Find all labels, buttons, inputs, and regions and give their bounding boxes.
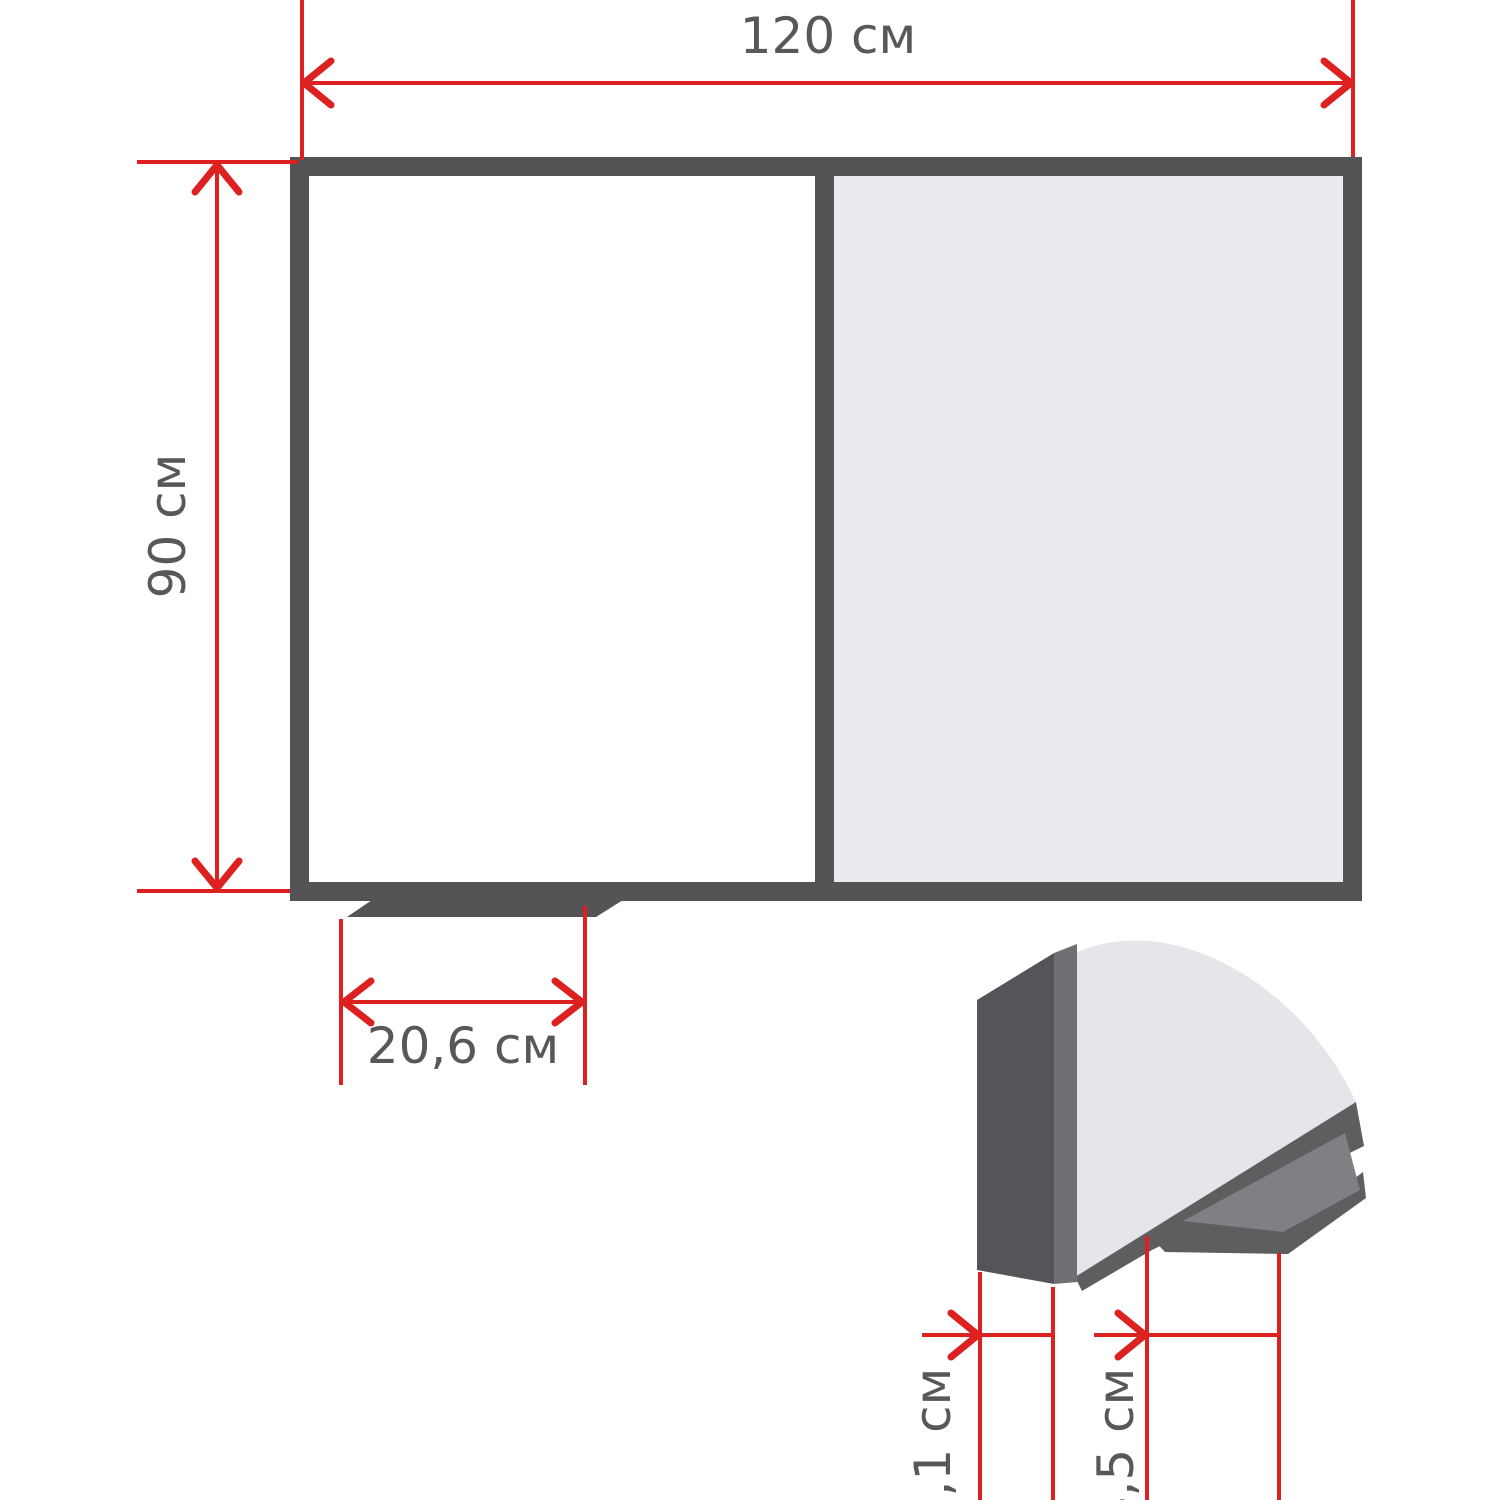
marker-tray xyxy=(347,900,623,917)
dimension-overlay xyxy=(0,0,1500,1500)
label-board-height: 90 см xyxy=(143,454,193,599)
label-tray-width: 20,6 см xyxy=(367,1021,559,1071)
dimension-drawing: 120 см 90 см 20,6 см 2,1 см 4,5 см xyxy=(0,0,1500,1500)
detail-frame-side xyxy=(1054,944,1077,1284)
label-tray-depth: 4,5 см xyxy=(1091,1368,1141,1500)
dimension-lines xyxy=(137,0,1353,1500)
cross-section-detail xyxy=(977,940,1366,1291)
detail-frame-profile xyxy=(977,953,1054,1284)
label-board-width: 120 см xyxy=(740,11,917,61)
label-profile-thickness: 2,1 см xyxy=(908,1368,958,1500)
